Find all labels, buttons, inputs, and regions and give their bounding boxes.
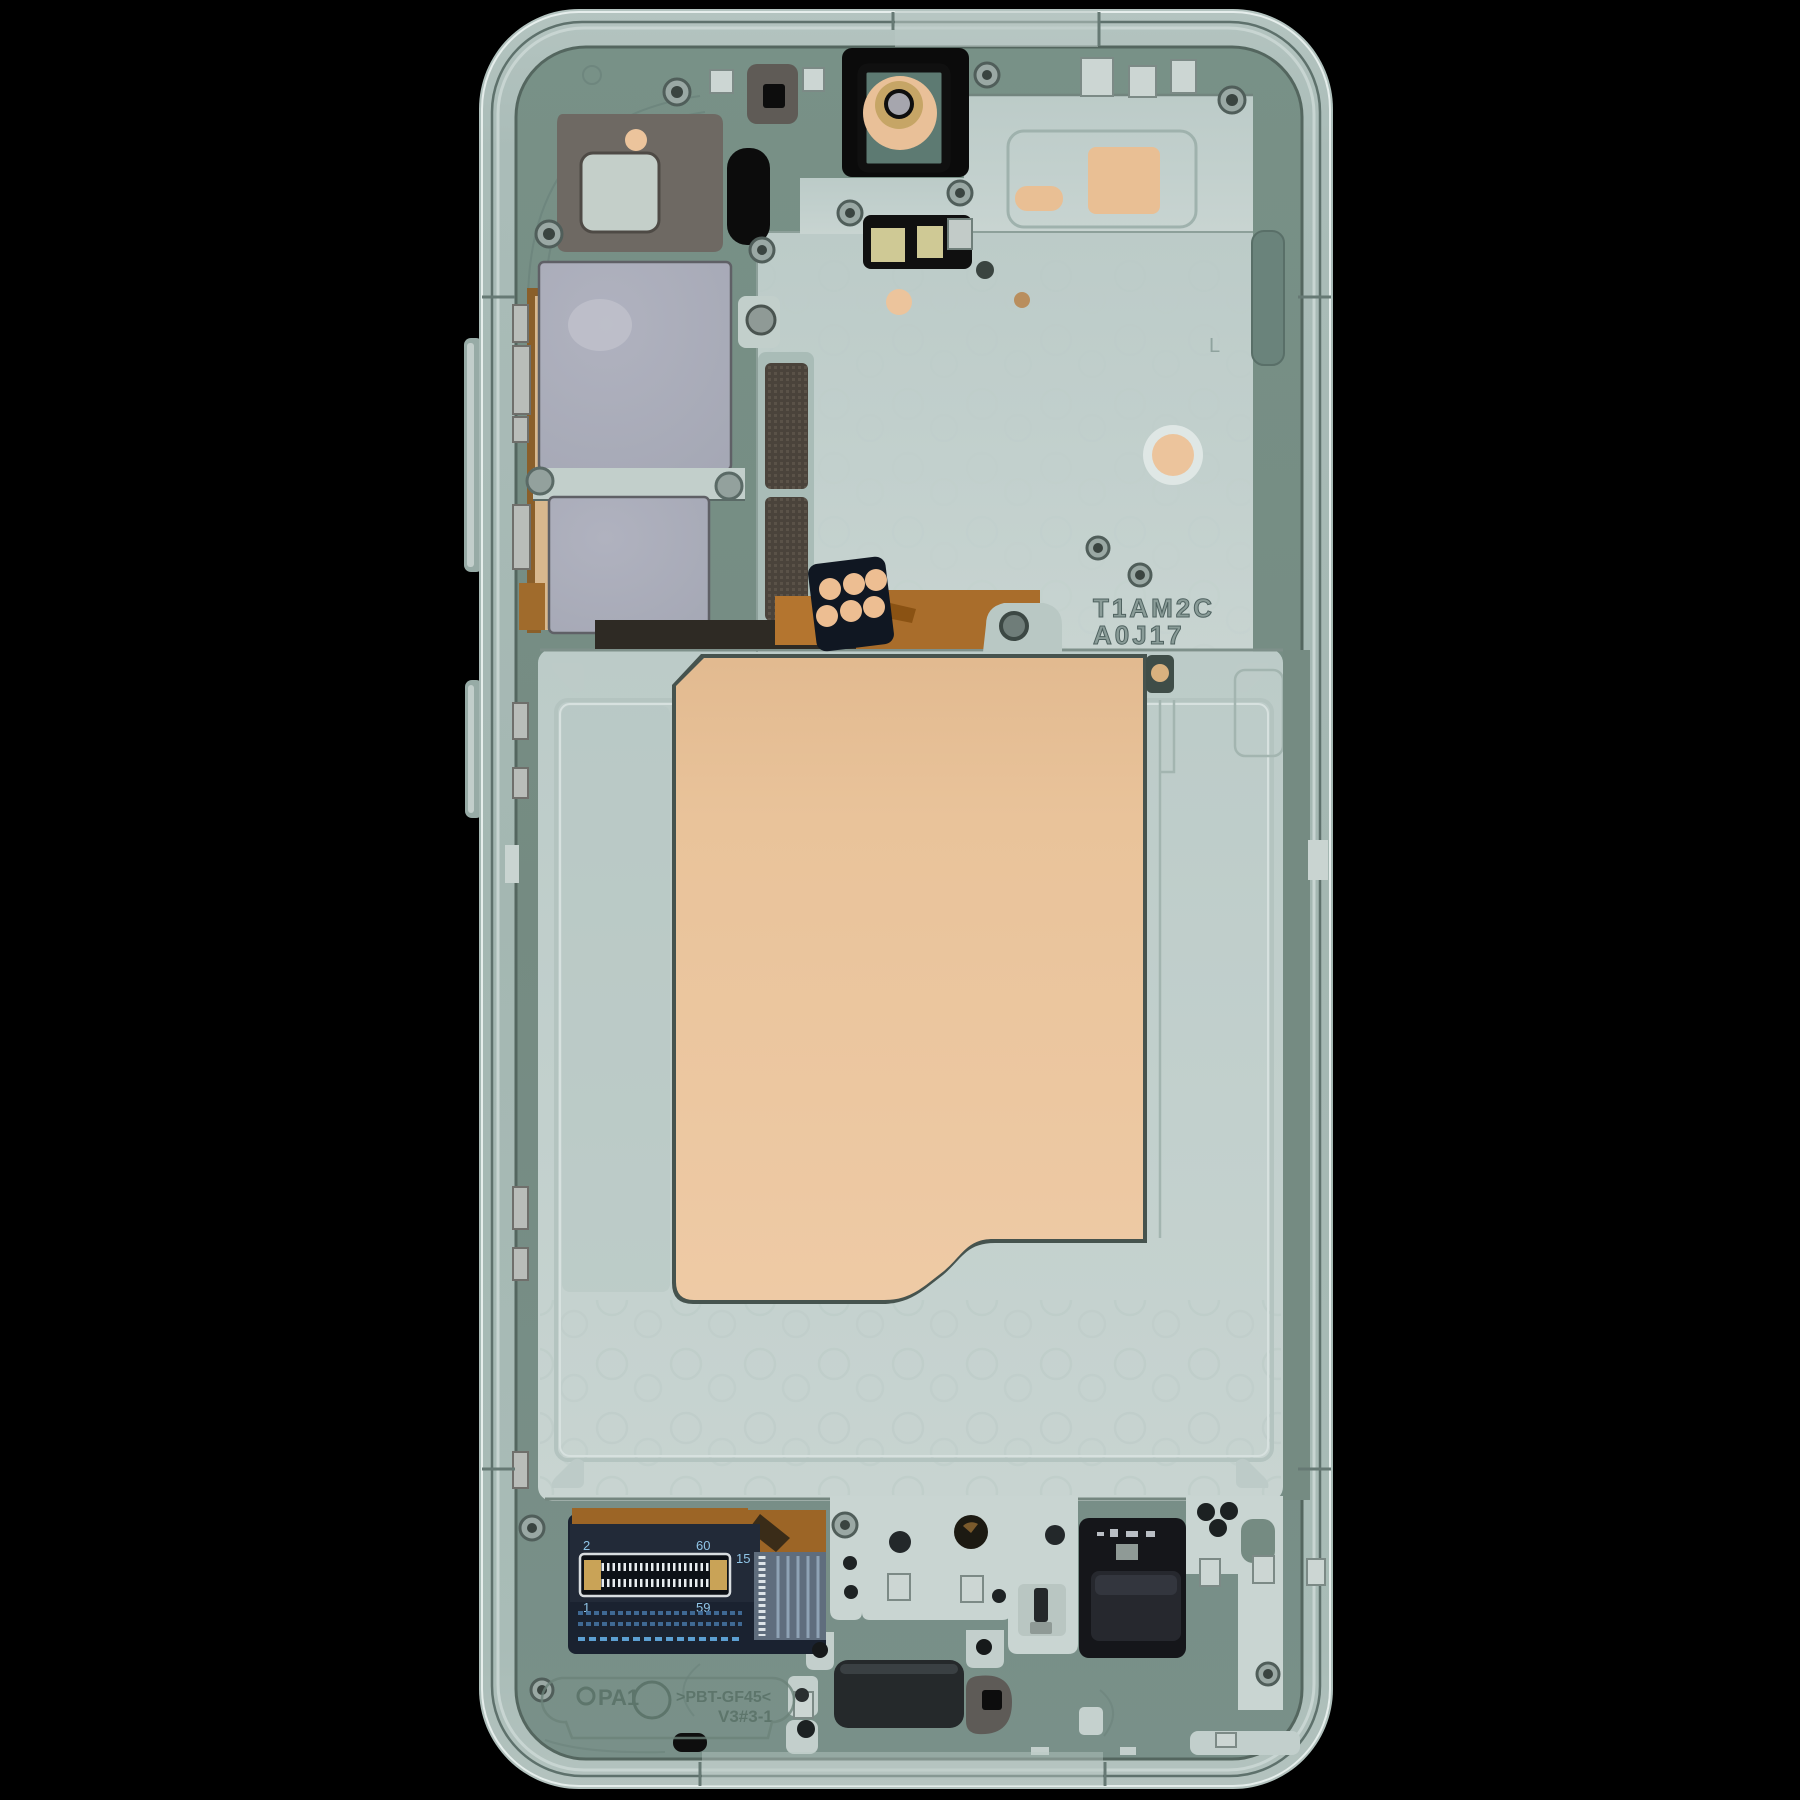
svg-text:15: 15 bbox=[736, 1551, 750, 1566]
svg-text:2: 2 bbox=[583, 1538, 590, 1553]
svg-text:A0J17: A0J17 bbox=[1093, 620, 1185, 650]
svg-text:60: 60 bbox=[696, 1538, 710, 1553]
svg-text:T1AM2C: T1AM2C bbox=[1093, 593, 1215, 623]
svg-text:V3#3-1: V3#3-1 bbox=[718, 1707, 773, 1726]
svg-text:L: L bbox=[1209, 335, 1220, 357]
svg-text:>PBT-GF45<: >PBT-GF45< bbox=[676, 1689, 771, 1706]
